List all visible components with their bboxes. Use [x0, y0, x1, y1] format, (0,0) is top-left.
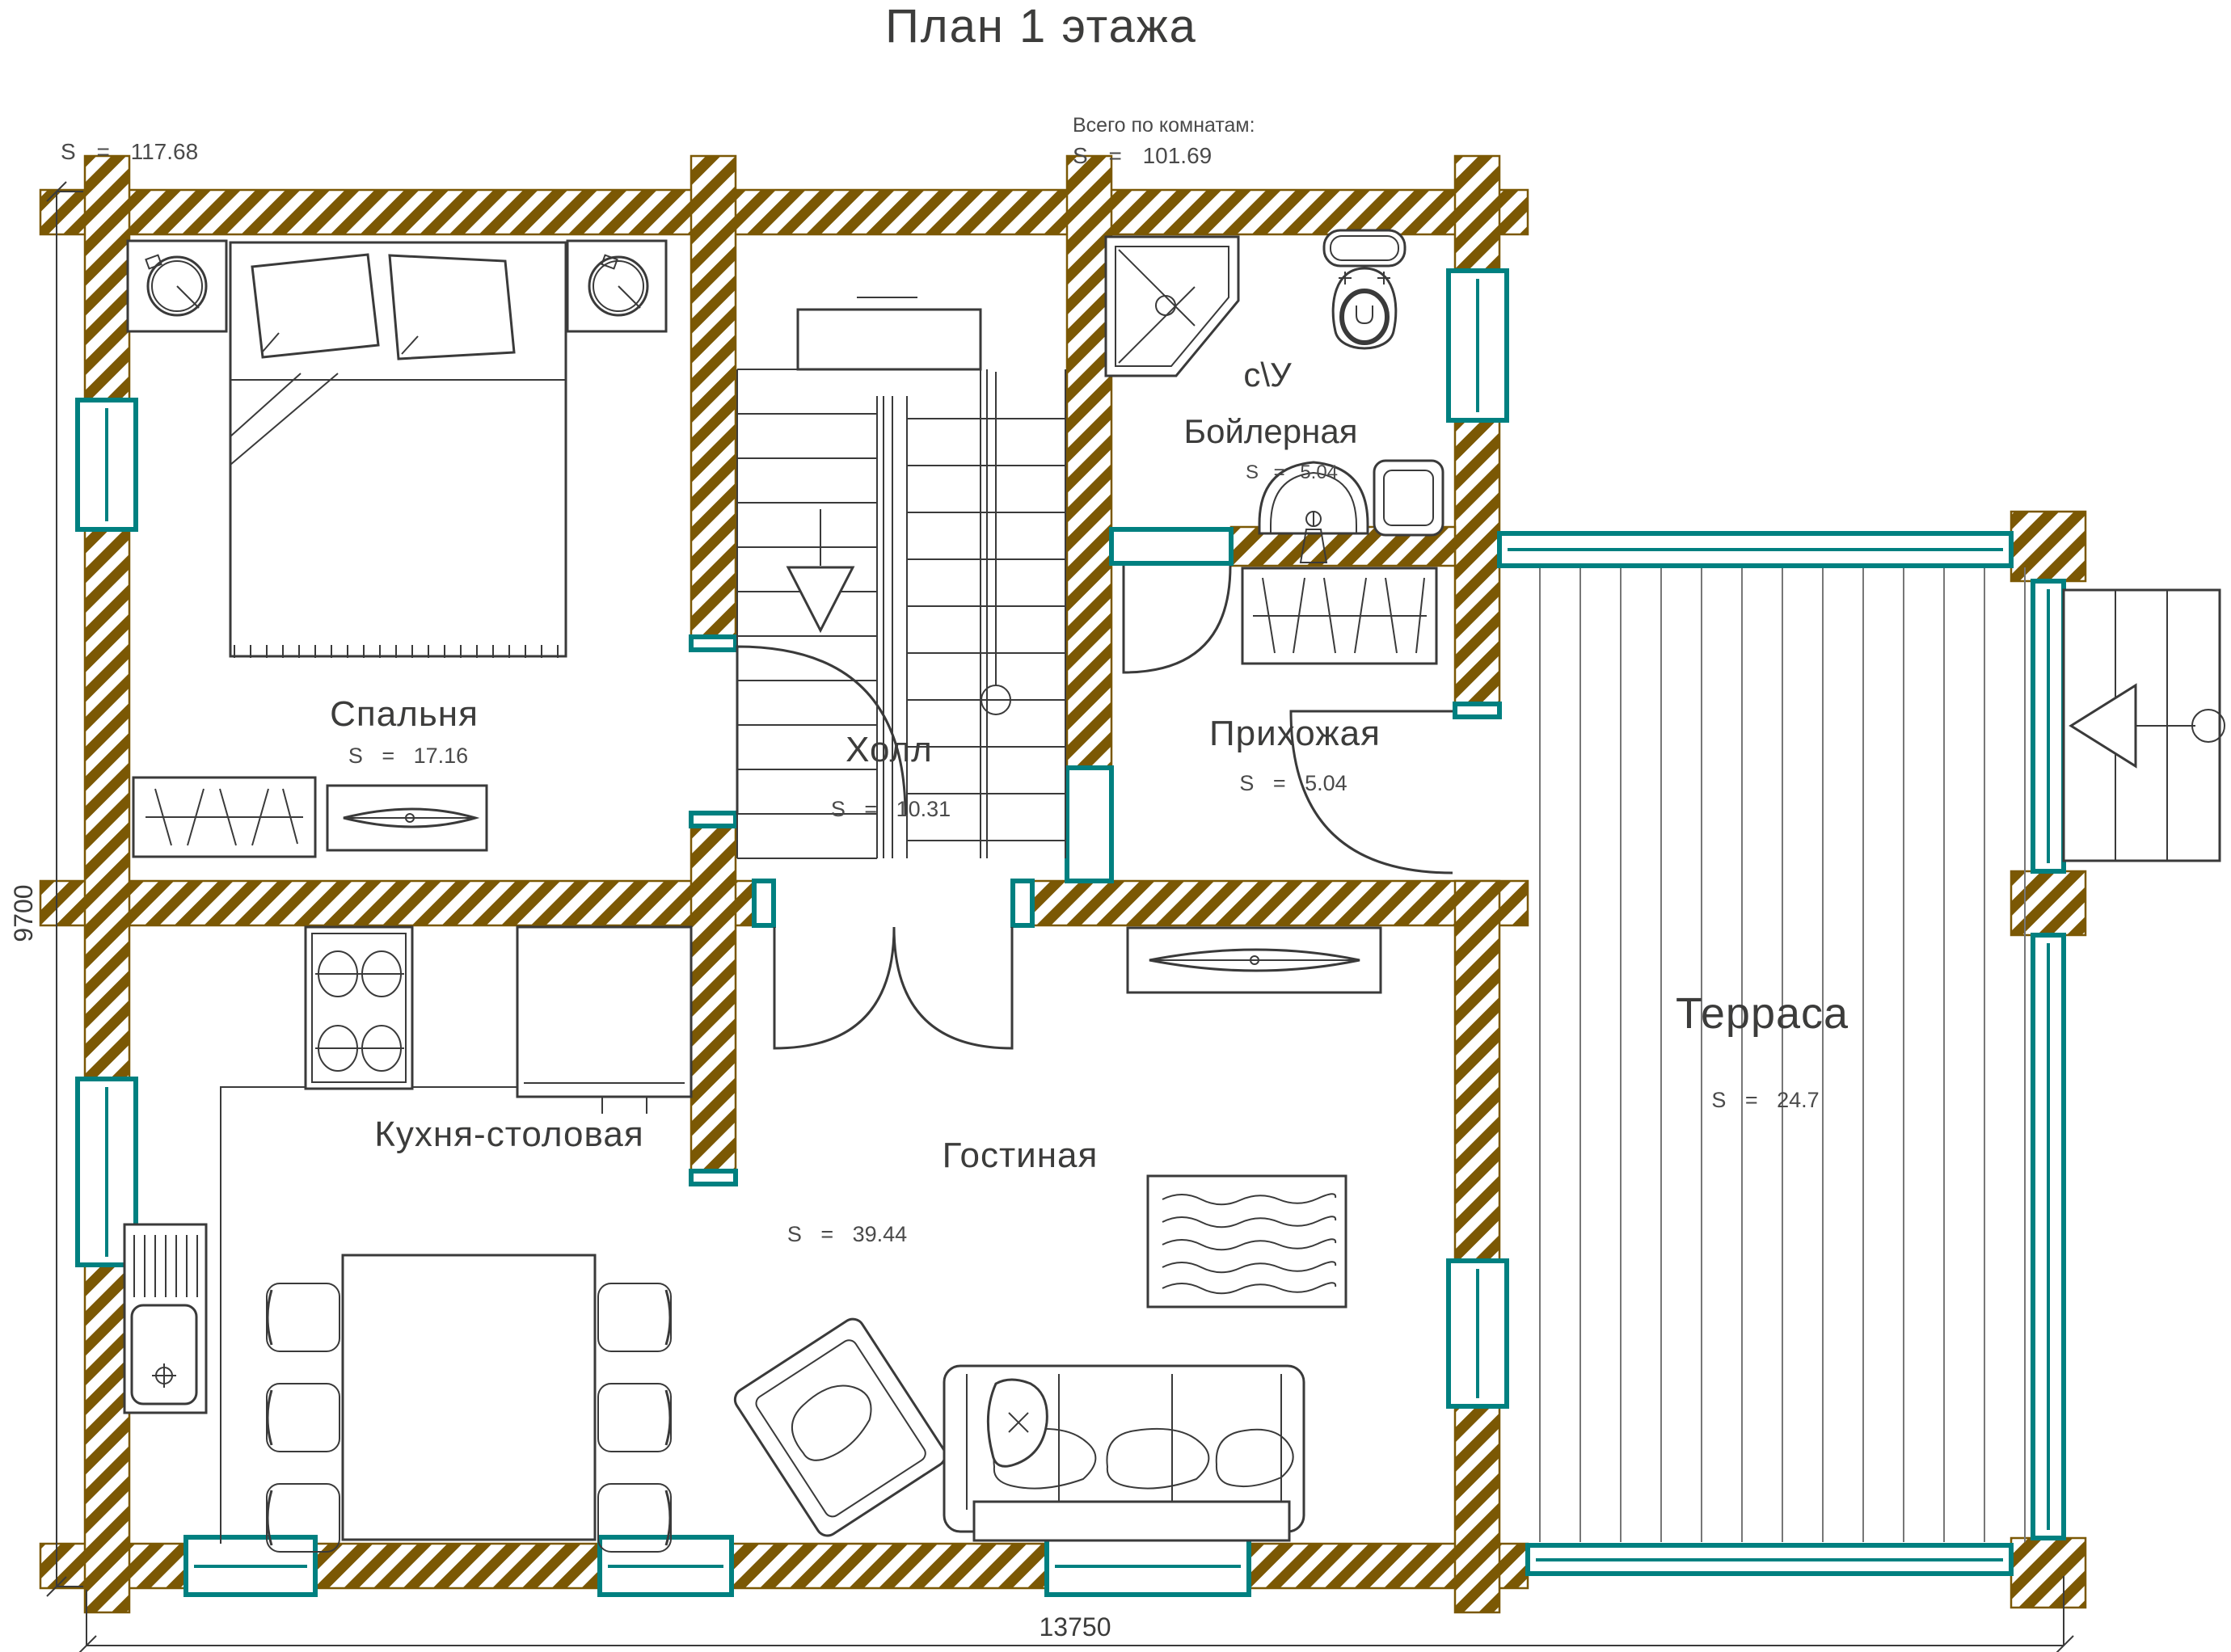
stove: [306, 927, 412, 1089]
room-area-boiler: S = 5.04: [1246, 461, 1338, 483]
nightstand-right: [567, 241, 666, 331]
wardrobe: [133, 778, 315, 857]
door-double-left: [774, 927, 894, 1048]
room-label-bedroom: Спальня: [330, 694, 479, 734]
window-living-right: [1449, 1261, 1507, 1406]
page-title: План 1 этажа: [885, 0, 1197, 53]
coat-rack: [1242, 568, 1436, 664]
dresser-tv: [327, 786, 487, 850]
room-label-hall: Холл: [846, 730, 933, 769]
dim-height-label: 9700: [9, 884, 38, 942]
room-label-living: Гостиная: [943, 1136, 1099, 1175]
shower-cabin: [1106, 237, 1238, 376]
rooms-total-caption: Всего по комнатам:: [1073, 114, 1255, 137]
kitchen-sink: [124, 1224, 206, 1413]
rooms-total-value: S = 101.69: [1073, 143, 1212, 168]
rug: [1148, 1176, 1346, 1307]
floor-plan-canvas: 9700 13750 План 1 этажа S = 117.68 Всего…: [0, 0, 2231, 1652]
bed-fringe: [234, 645, 558, 658]
dim-width-label: 13750: [1040, 1612, 1111, 1641]
room-label-boiler-line1: с\У: [1243, 356, 1292, 394]
room-area-bedroom: S = 17.16: [348, 744, 468, 768]
window-living-bottom-left: [600, 1537, 732, 1595]
toilet: [1324, 230, 1405, 348]
pillow-right: [390, 255, 514, 359]
window-kitchen-bottom: [186, 1537, 315, 1595]
floor-plan-drawing: 9700 13750 План 1 этажа S = 117.68 Всего…: [0, 0, 2231, 1652]
entry-furniture: [1242, 568, 1436, 664]
total-area-label: S = 117.68: [61, 139, 198, 164]
dining-table: [343, 1255, 595, 1540]
nightstand-left: [128, 241, 226, 331]
armchair: [731, 1315, 950, 1540]
staircase: [737, 297, 1065, 858]
opening-hall-entry: [1067, 768, 1111, 881]
boiler-fixtures: [1106, 230, 1443, 563]
window-boiler-right: [1449, 271, 1507, 420]
room-area-terrace: S = 24.7: [1711, 1088, 1819, 1112]
door-double-right: [894, 927, 1012, 1048]
terrace: [1499, 533, 2225, 1574]
door-boiler: [1124, 566, 1230, 672]
window-bedroom-left: [78, 400, 136, 529]
sofa: [944, 1366, 1304, 1540]
entry-steps: [2064, 590, 2225, 861]
tv-console: [1128, 928, 1381, 992]
room-label-boiler-line2: Бойлерная: [1184, 412, 1358, 450]
room-area-hall: S = 10.31: [831, 797, 951, 821]
stairs-down-arrow: [788, 567, 853, 630]
room-area-entry: S = 5.04: [1239, 771, 1347, 795]
boiler-unit: [1374, 461, 1443, 535]
fridge: [517, 927, 691, 1114]
door-frame-boiler: [1111, 529, 1231, 563]
room-label-kitchen: Кухня-столовая: [374, 1115, 643, 1154]
window-living-bottom: [1047, 1537, 1249, 1595]
room-label-terrace: Терраса: [1676, 989, 1849, 1038]
terrace-planks: [1540, 567, 2025, 1542]
room-label-entry: Прихожая: [1209, 714, 1381, 753]
room-area-living: S = 39.44: [787, 1222, 907, 1246]
kitchen-furniture: [124, 927, 691, 1552]
